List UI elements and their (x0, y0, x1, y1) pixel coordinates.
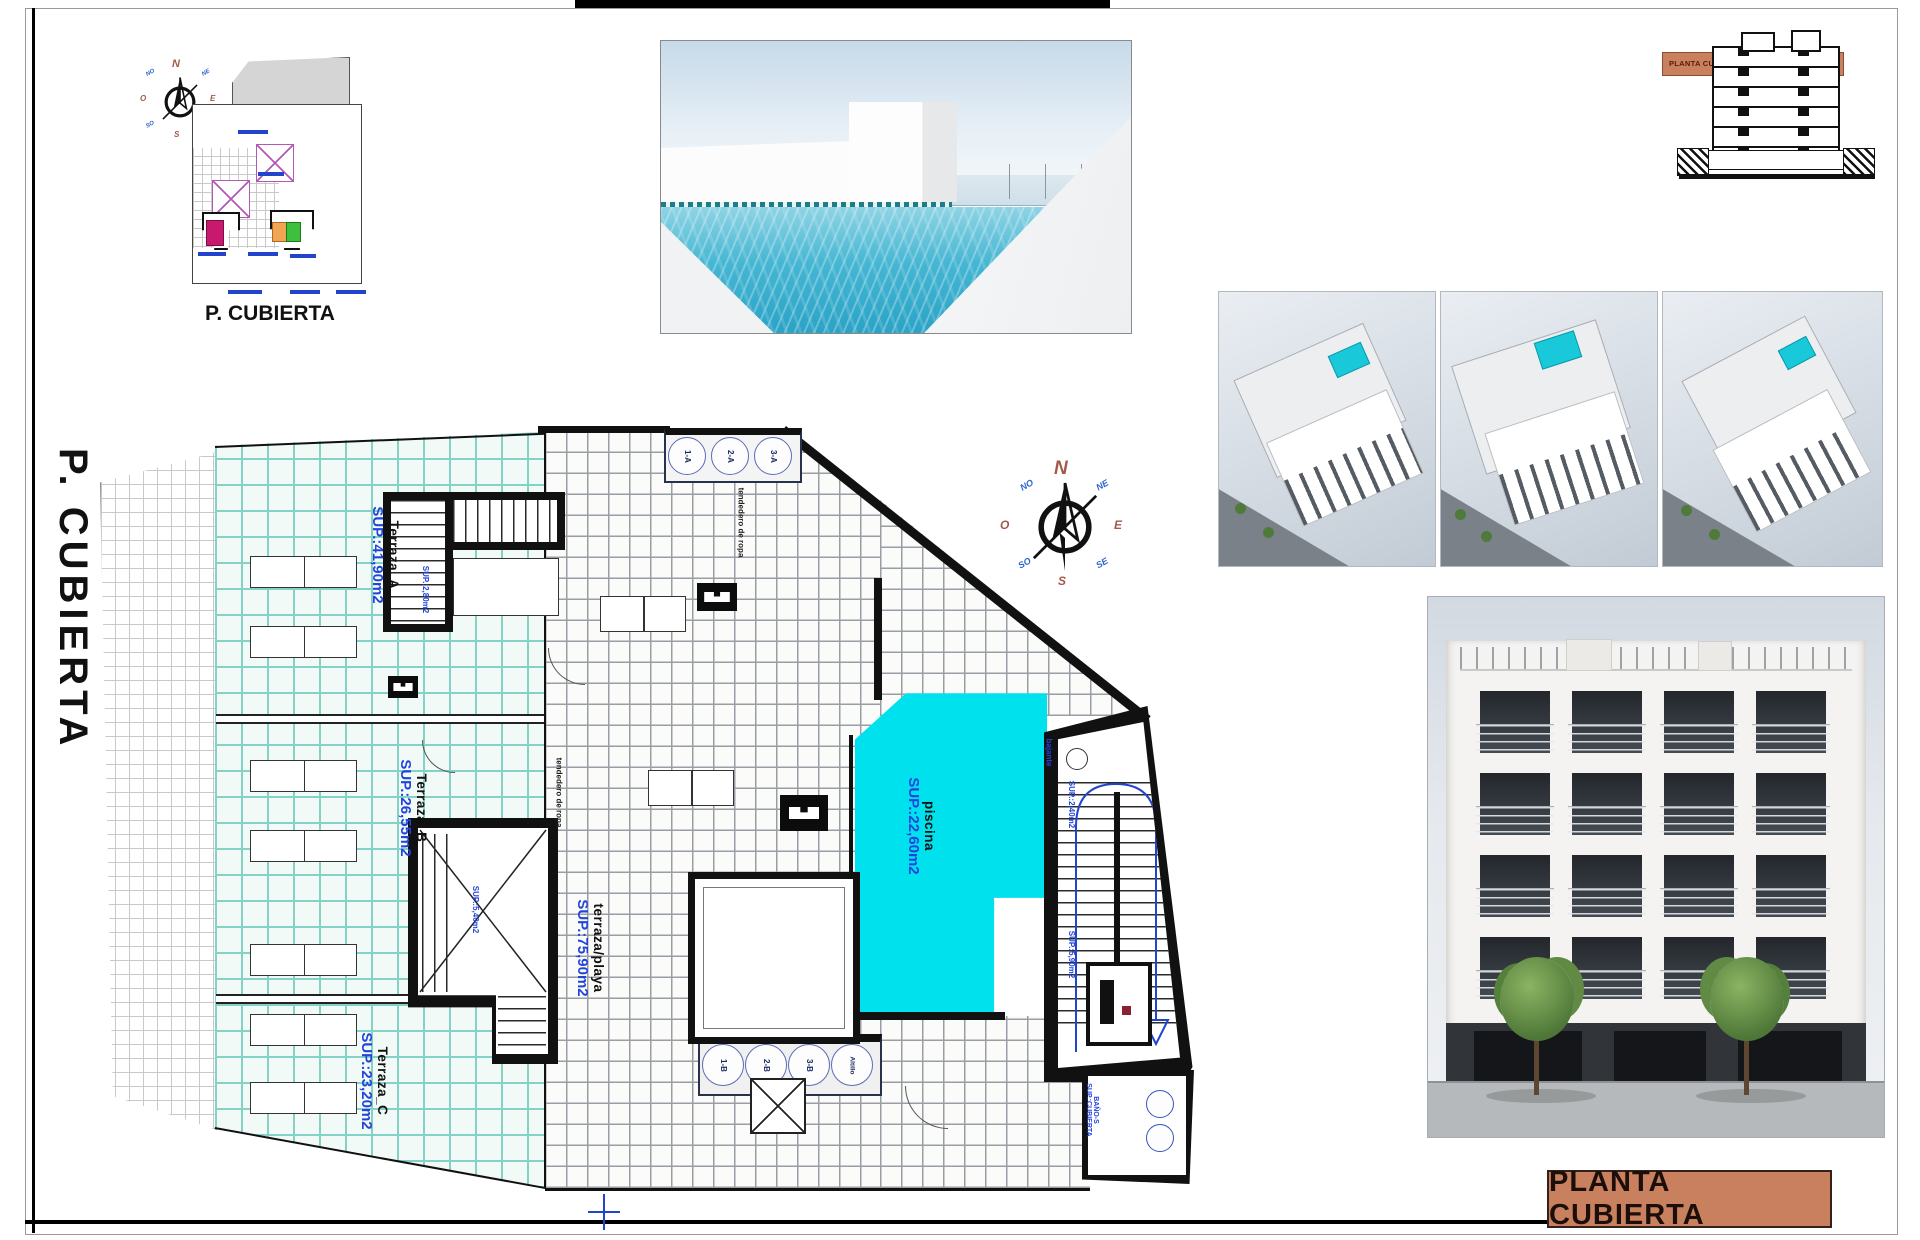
skylight-altillo: Altillo (831, 1044, 873, 1086)
skylight-box-top: 1-A 2-A 3-A (664, 428, 802, 483)
ac-unit (388, 676, 418, 698)
site-note-bar (228, 290, 262, 294)
facade-window (1572, 855, 1642, 917)
tree-shadow (1486, 1089, 1596, 1103)
aerial-render-3 (1662, 291, 1883, 567)
aerial-render-2 (1440, 291, 1658, 567)
section-base (1705, 150, 1847, 170)
aerial-render-1 (1218, 291, 1436, 567)
pool-label: piscina SUP.:22,60m2 (904, 766, 938, 886)
roof-equipment-pair (600, 596, 686, 632)
site-patch-orange (272, 222, 287, 242)
laundry-label: tendedero de ropa (736, 488, 745, 558)
stair-b-sup-label: SUP.:5,40m2 (471, 886, 480, 933)
facade-roof-box (1566, 639, 1612, 671)
main-stair-sup: SUP.:5,90m2 (1067, 931, 1076, 978)
site-patch-green (286, 222, 301, 242)
tree-shadow (1696, 1089, 1806, 1103)
aerial-tree (1263, 527, 1274, 538)
site-compass-n: N (172, 58, 180, 70)
facade-window (1572, 773, 1642, 835)
section-key: PLANTA CUBIERTA (1655, 28, 1890, 183)
section-hatch-right (1843, 148, 1875, 176)
aerial-tree (1235, 503, 1246, 514)
wall-plan-bottom (545, 1188, 1090, 1191)
frame-top-bar (575, 0, 1110, 8)
compass-o: O (1000, 518, 1009, 532)
roof-skylight-square (688, 872, 860, 1044)
stair-a-flight-h (453, 500, 557, 542)
plan-compass: N E S O NO NE SO SE (1000, 462, 1130, 592)
ac-unit (780, 795, 828, 831)
site-note-bar (198, 252, 226, 256)
roof-equipment-pair (250, 1014, 357, 1046)
facade-window (1572, 937, 1642, 999)
main-stair-sup-top: SUP.:2,40m2 (1067, 781, 1076, 828)
facade-ground-floor (1446, 1023, 1866, 1081)
roof-equipment-pair (648, 770, 734, 806)
facade-roof-railing (1460, 647, 1852, 671)
site-note-bar (238, 130, 268, 134)
balcony-railing (1660, 806, 1738, 835)
site-note-bar (336, 290, 366, 294)
roof-equipment-pair (250, 944, 357, 976)
drawing-sheet: { "sheet": { "side_title": "P. CUBIERTA"… (0, 0, 1920, 1240)
side-sheet-title: P. CUBIERTA (50, 448, 95, 750)
aerial-tree (1709, 529, 1720, 540)
aerial-tree (1681, 505, 1692, 516)
beach-terrace-label: terraza/playa SUP.:75,90m2 (573, 888, 607, 1008)
balcony-railing (1660, 724, 1738, 753)
skylight-2a: 2-A (711, 437, 749, 475)
site-compass-s: S (174, 130, 179, 139)
roof-equipment-pair (250, 626, 357, 658)
section-windows-left (1738, 48, 1749, 152)
facade-street (1428, 1081, 1884, 1138)
skylight-1b: 1-B (702, 1044, 744, 1086)
roof-equipment-pair (250, 556, 357, 588)
compass-n: N (1054, 458, 1068, 480)
photo-wall-cube (849, 102, 957, 202)
terrace-c-label: Terraza_C SUP.:23,20m2 (357, 1021, 391, 1141)
section-roof-box-2 (1791, 30, 1821, 52)
facade-window (1480, 855, 1550, 917)
aerial-renders (1218, 291, 1882, 567)
balcony-railing (1476, 724, 1554, 753)
tree-canopy (1710, 957, 1784, 1041)
section-building (1712, 46, 1840, 154)
aerial-tree (1455, 509, 1466, 520)
elevator-cab (1100, 980, 1114, 1024)
facade-window (1664, 855, 1734, 917)
drain-circle (1066, 748, 1088, 770)
roof-equipment-pair (250, 1082, 357, 1114)
section-roof-box-1 (1741, 32, 1775, 52)
section-ground-line (1679, 174, 1875, 179)
storefront-opening (1614, 1031, 1706, 1081)
frame-left-bar (32, 8, 35, 1233)
wall-pool-bottom (850, 1012, 1005, 1020)
site-compass-e: E (210, 94, 215, 103)
drain-label: bajante (1045, 738, 1054, 766)
facade-window (1480, 691, 1550, 753)
facade-window (1756, 773, 1826, 835)
title-block: PLANTA CUBIERTA (1547, 1170, 1832, 1228)
plan-neighbor-roof (100, 452, 217, 1130)
roof-equipment-pair (250, 760, 357, 792)
wall-pool-head (874, 578, 882, 700)
bath-label: BAÑO-S SUP.:CUBIERTA (1082, 1082, 1102, 1138)
title-block-label: PLANTA CUBIERTA (1549, 1166, 1830, 1232)
facade-render (1427, 596, 1885, 1138)
site-xbox-1 (256, 144, 294, 182)
balcony-railing (1476, 806, 1554, 835)
site-note-bar (290, 254, 316, 258)
facade-window (1756, 855, 1826, 917)
site-compass-o: O (140, 94, 146, 103)
balcony-railing (1568, 970, 1646, 999)
site-note-bar (248, 252, 278, 256)
stair-a-landing (453, 558, 559, 616)
aerial-tree (1481, 531, 1492, 542)
balcony-railing (1476, 888, 1554, 917)
site-patch-crimson (206, 220, 224, 246)
balcony-railing (1568, 724, 1646, 753)
roof-equipment-pair (250, 830, 357, 862)
facade-roof-box (1698, 641, 1732, 671)
balcony-railing (1752, 888, 1830, 917)
terrace-a-label: Terraza_A SUP.:41,90m2 (368, 495, 402, 615)
skylight-1a: 1-A (668, 437, 706, 475)
site-note-bar (290, 290, 320, 294)
terrace-joint-1 (216, 714, 545, 724)
terrace-b-label: Terraza_B SUP.:26,55m2 (396, 748, 430, 868)
wall-top (538, 426, 670, 433)
frame-bottom-bar (25, 1220, 1549, 1224)
stair-b-flight-right (498, 996, 546, 1052)
ac-unit (697, 583, 737, 611)
compass-e: E (1114, 518, 1122, 532)
facade-window (1756, 691, 1826, 753)
balcony-railing (1752, 724, 1830, 753)
balcony-railing (1568, 888, 1646, 917)
facade-window (1572, 691, 1642, 753)
tree-canopy (1500, 957, 1574, 1041)
stair-a-sup-label: SUP.:2,80m2 (421, 566, 430, 613)
roof-skylight-inner (703, 887, 845, 1029)
survey-cross (588, 1194, 620, 1230)
section-hatch-left (1677, 148, 1709, 176)
site-key-plan: N E S O NO NE SO SE P. CUBIERTA (140, 52, 380, 320)
site-caption: P. CUBIERTA (170, 302, 370, 326)
bath-fixture (1146, 1090, 1174, 1118)
site-note-bar (258, 172, 284, 176)
elevator-mark (1122, 1006, 1131, 1015)
pool-photo (660, 40, 1132, 334)
balcony-railing (1568, 806, 1646, 835)
balcony-railing (1660, 888, 1738, 917)
laundry-label: tendedero de ropa (554, 758, 563, 828)
skylight-3a: 3-A (754, 437, 792, 475)
facade-window (1480, 773, 1550, 835)
facade-window (1664, 691, 1734, 753)
compass-s: S (1058, 574, 1066, 588)
elevator-box (1086, 962, 1152, 1046)
bath-fixture (1146, 1124, 1174, 1152)
section-windows-right (1798, 48, 1809, 152)
bath-interior (1088, 1076, 1186, 1175)
facade-window (1664, 773, 1734, 835)
drain-box (750, 1078, 806, 1134)
balcony-railing (1752, 806, 1830, 835)
